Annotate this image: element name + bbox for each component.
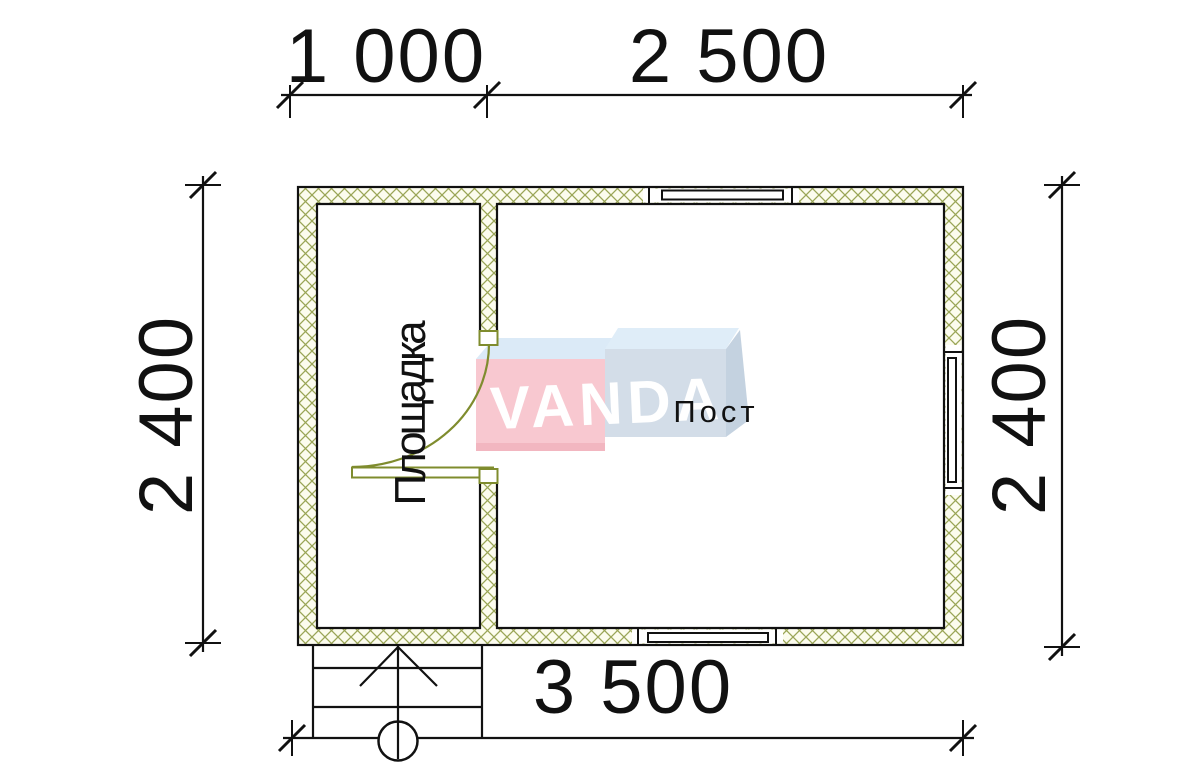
door-jamb-top [480,331,498,345]
vanda-logo: VANDA [476,328,749,451]
dim-label-top-right: 2 500 [629,14,829,99]
room-label-post: Пост [673,394,758,429]
window-right [945,345,963,495]
floor-plan-drawing: VANDA [0,0,1200,772]
dim-label-top-left: 1 000 [286,14,486,99]
floor-plan-page: VANDA [0,0,1200,772]
wall-left [298,187,317,645]
dim-label-left: 2 400 [124,315,209,515]
window-bottom [632,629,783,645]
room-label-vestibule: Площадка [386,320,435,506]
dim-label-bottom: 3 500 [533,645,733,730]
logo-pink-cube-bottom-edge [476,443,605,451]
wall-partition-lower [480,483,497,628]
window-top [643,188,799,204]
door-jamb-bottom [480,469,498,483]
wall-bottom [298,628,963,645]
dim-label-right: 2 400 [977,315,1062,515]
wall-top [298,187,963,204]
logo-blue-cube-top-face [605,328,739,349]
wall-partition-upper [480,204,497,331]
